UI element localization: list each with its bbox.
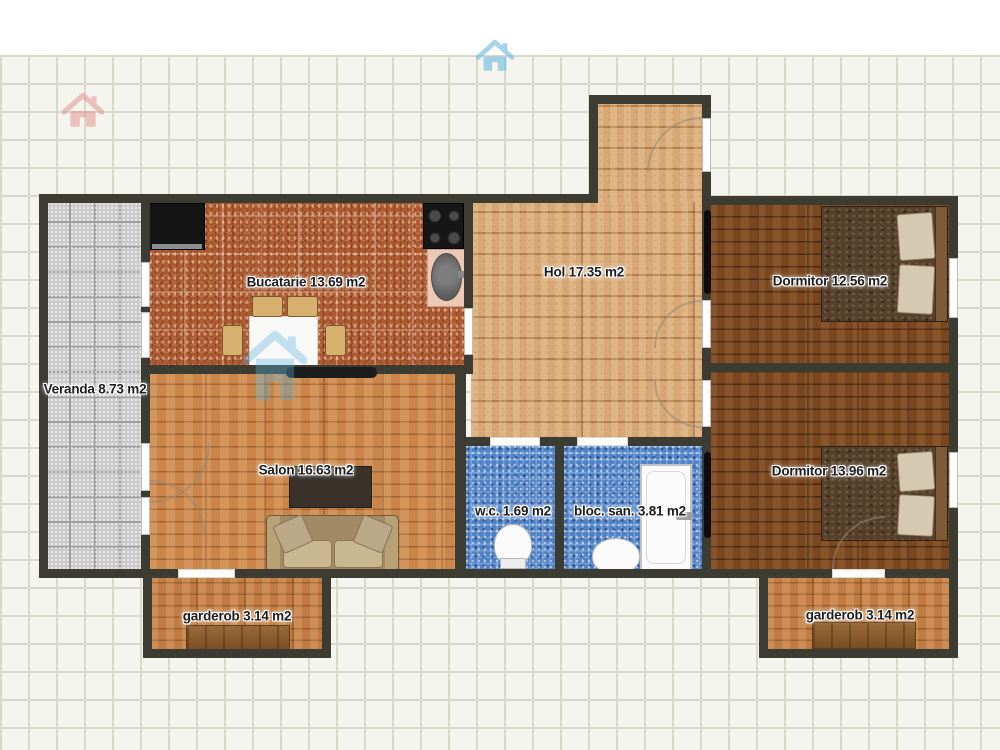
room-label-dormitor-bottom: Dormitor 13.96 m2 bbox=[772, 464, 886, 479]
wall[interactable] bbox=[702, 196, 958, 205]
window[interactable] bbox=[949, 452, 958, 508]
bed-pillow bbox=[896, 212, 935, 261]
door-opening[interactable] bbox=[178, 569, 235, 578]
room-label-wc: w.c. 1.69 m2 bbox=[475, 504, 551, 519]
wall[interactable] bbox=[759, 578, 768, 658]
door-opening[interactable] bbox=[702, 380, 711, 427]
door-opening[interactable] bbox=[702, 300, 711, 348]
wall[interactable] bbox=[949, 578, 958, 658]
stove[interactable] bbox=[423, 203, 464, 249]
bed-headboard bbox=[935, 207, 947, 321]
door-opening[interactable] bbox=[490, 437, 540, 446]
fridge-handle bbox=[152, 244, 202, 249]
fridge[interactable] bbox=[149, 203, 205, 250]
chair[interactable] bbox=[287, 296, 318, 317]
home-icon-watermark bbox=[243, 330, 307, 402]
room-label-bucatarie: Bucatarie 13.69 m2 bbox=[247, 275, 366, 290]
room-label-garderob-right: garderob 3.14 m2 bbox=[806, 608, 915, 623]
door-opening[interactable] bbox=[141, 443, 150, 491]
floorplan-canvas: Veranda 8.73 m2 Bucatarie 13.69 m2 Hol 1… bbox=[0, 0, 1000, 750]
door-opening[interactable] bbox=[141, 497, 150, 535]
chair[interactable] bbox=[252, 296, 283, 317]
room-label-salon: Salon 16.63 m2 bbox=[259, 463, 354, 478]
wall[interactable] bbox=[455, 365, 466, 578]
wall[interactable] bbox=[143, 578, 152, 658]
wall[interactable] bbox=[589, 95, 598, 203]
bed-pillow bbox=[897, 264, 936, 315]
door-opening[interactable] bbox=[577, 437, 628, 446]
bed-headboard bbox=[935, 447, 947, 540]
wall[interactable] bbox=[143, 649, 331, 658]
room-label-hol: Hol 17.35 m2 bbox=[544, 265, 624, 280]
window[interactable] bbox=[949, 258, 958, 318]
window[interactable] bbox=[702, 118, 711, 172]
home-icon-red bbox=[62, 92, 104, 128]
room-label-dormitor-top: Dormitor 12.56 m2 bbox=[773, 274, 887, 289]
wardrobe[interactable] bbox=[812, 622, 916, 649]
door-leaf[interactable] bbox=[704, 452, 711, 538]
wall[interactable] bbox=[702, 363, 958, 372]
door-leaf[interactable] bbox=[704, 210, 711, 294]
room-label-bloc-san: bloc. san. 3.81 m2 bbox=[574, 504, 686, 519]
wall[interactable] bbox=[39, 194, 598, 203]
sofa[interactable] bbox=[266, 515, 399, 572]
room-label-veranda: Veranda 8.73 m2 bbox=[44, 382, 147, 397]
wall[interactable] bbox=[759, 649, 958, 658]
room-label-garderob-left: garderob 3.14 m2 bbox=[183, 609, 292, 624]
chair[interactable] bbox=[325, 325, 346, 356]
door-opening[interactable] bbox=[832, 569, 885, 578]
wardrobe[interactable] bbox=[186, 625, 290, 651]
toilet-tank bbox=[500, 558, 526, 569]
wall[interactable] bbox=[322, 578, 331, 658]
chair[interactable] bbox=[222, 325, 243, 356]
wall[interactable] bbox=[39, 569, 958, 578]
bed[interactable] bbox=[821, 206, 948, 322]
wall[interactable] bbox=[555, 437, 564, 578]
wall[interactable] bbox=[949, 196, 958, 578]
window[interactable] bbox=[141, 312, 150, 358]
wall[interactable] bbox=[589, 95, 711, 104]
window[interactable] bbox=[464, 308, 473, 355]
bed-pillow bbox=[897, 494, 935, 537]
home-icon-blue bbox=[476, 39, 514, 72]
bed-pillow bbox=[897, 451, 936, 492]
window[interactable] bbox=[141, 262, 150, 307]
